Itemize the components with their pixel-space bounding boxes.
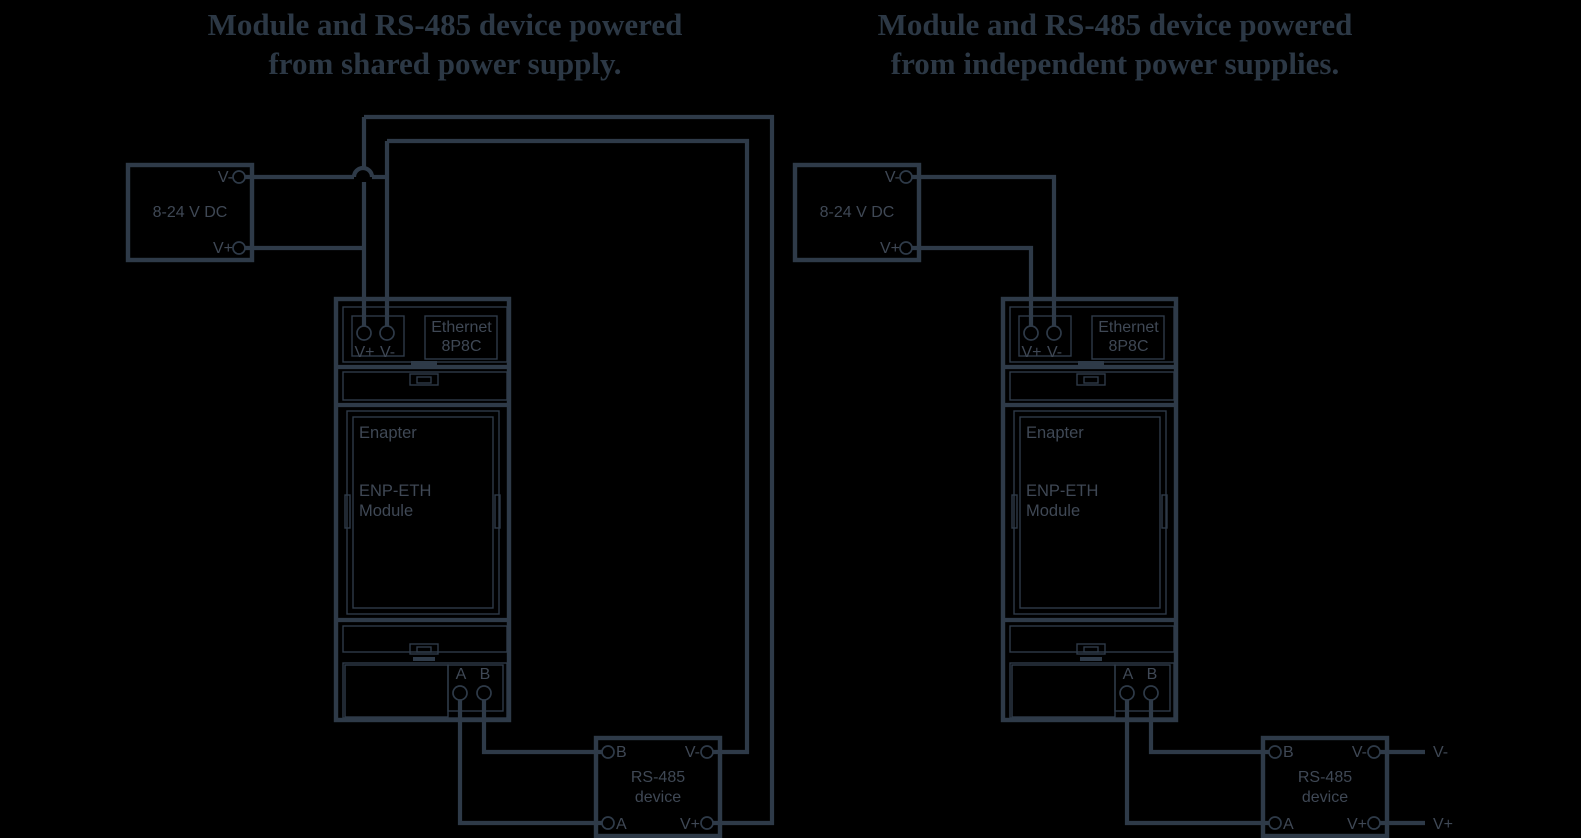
right-module-brand: Enapter (1026, 423, 1084, 443)
right-module-vminus-label: V- (1040, 344, 1069, 361)
left-module-b-label: B (475, 666, 495, 683)
left-module-a-label: A (451, 666, 471, 683)
right-psu-vminus-label: V- (847, 169, 900, 186)
right-diagram-wires (912, 177, 1425, 823)
left-module-vminus-label: V- (373, 344, 402, 361)
diagram-linework (0, 0, 1581, 838)
right-rs485-vplus-label: V+ (1317, 816, 1367, 833)
right-module-model-line1: ENP-ETH (1026, 481, 1098, 501)
left-rs485-vplus-label: V+ (650, 816, 700, 833)
wiring-diagram-canvas: Module and RS-485 device powered from sh… (0, 0, 1581, 838)
left-psu-vplus-label: V+ (180, 240, 233, 257)
left-module-model-line2: Module (359, 501, 413, 521)
left-rs485-name-line1: RS-485 (596, 769, 720, 786)
right-title-line1: Module and RS-485 device powered (830, 5, 1400, 44)
left-module-brand: Enapter (359, 423, 417, 443)
left-psu-label: 8-24 V DC (128, 204, 252, 221)
left-title-line1: Module and RS-485 device powered (160, 5, 730, 44)
left-rs485-name-line2: device (596, 789, 720, 806)
right-rs485-a-label: A (1283, 816, 1294, 833)
left-module-model-line1: ENP-ETH (359, 481, 431, 501)
right-module-b-label: B (1142, 666, 1162, 683)
right-psu-vplus-label: V+ (847, 240, 900, 257)
left-ethernet-label-line1: Ethernet (426, 319, 497, 336)
right-rs485-vminus-label: V- (1317, 744, 1367, 761)
left-rs485-a-label: A (616, 816, 627, 833)
left-title-line2: from shared power supply. (160, 44, 730, 83)
right-ethernet-label-line1: Ethernet (1093, 319, 1164, 336)
wire-hop (354, 168, 372, 177)
right-rs485-b-label: B (1283, 744, 1294, 761)
right-title-line2: from independent power supplies. (830, 44, 1400, 83)
right-external-vminus-label: V- (1433, 744, 1448, 761)
right-rs485-name-line2: device (1263, 789, 1387, 806)
right-rs485-name-line1: RS-485 (1263, 769, 1387, 786)
left-title: Module and RS-485 device powered from sh… (160, 5, 730, 83)
left-ethernet-label-line2: 8P8C (426, 338, 497, 355)
left-rs485-vminus-label: V- (650, 744, 700, 761)
right-psu-label: 8-24 V DC (795, 204, 919, 221)
left-psu-vminus-label: V- (180, 169, 233, 186)
right-title: Module and RS-485 device powered from in… (830, 5, 1400, 83)
right-module-a-label: A (1118, 666, 1138, 683)
right-external-vplus-label: V+ (1433, 816, 1453, 833)
left-rs485-b-label: B (616, 744, 627, 761)
right-module-model-line2: Module (1026, 501, 1080, 521)
right-ethernet-label-line2: 8P8C (1093, 338, 1164, 355)
